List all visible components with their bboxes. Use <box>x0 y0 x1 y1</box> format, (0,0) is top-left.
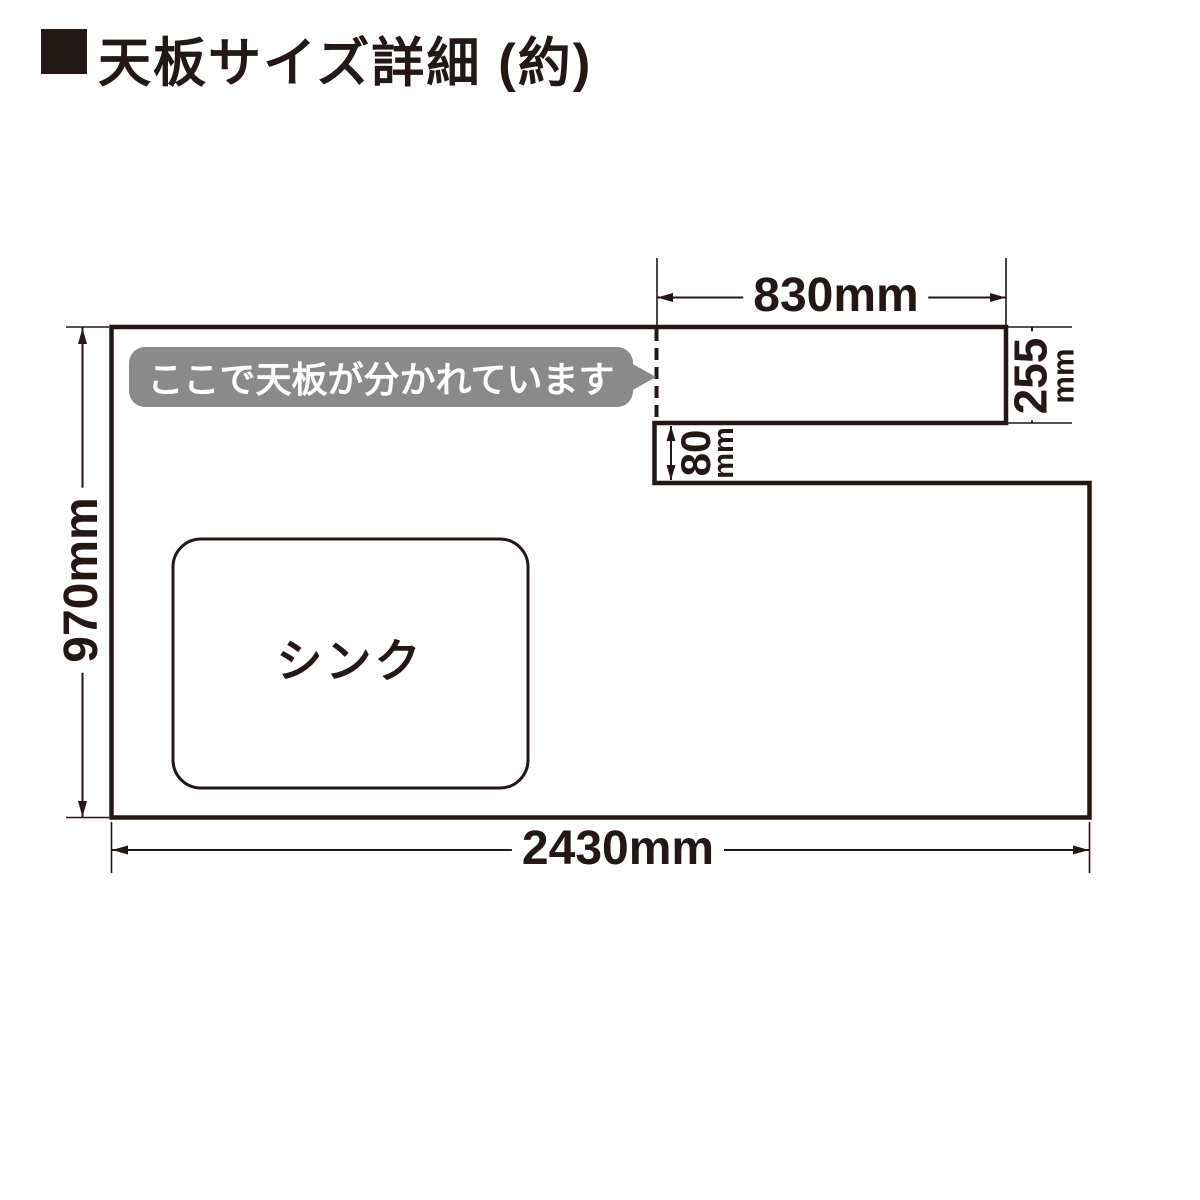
dim-255-unit: mm <box>1050 338 1075 415</box>
dim-830-label: 830mm <box>743 272 928 320</box>
callout-bubble: ここで天板が分かれています <box>129 347 633 407</box>
dim-970-label: 970mm <box>58 487 106 672</box>
countertop-size-diagram-page: 天板サイズ詳細 (約) <box>0 0 1200 1200</box>
callout-text: ここで天板が分かれています <box>148 351 615 403</box>
dim-2430-label: 2430mm <box>512 825 724 873</box>
dim-830-arrow-right <box>990 293 1006 302</box>
callout-pointer <box>631 363 656 391</box>
dim-255-label: 255 mm <box>1010 332 1077 421</box>
dim-80-unit: mm <box>713 427 737 479</box>
dim-2430-arrow-left <box>112 846 128 855</box>
dim-970-arrow-bottom <box>78 801 87 817</box>
countertop-drawing <box>0 0 1200 1200</box>
dim-970-arrow-top <box>78 328 87 344</box>
dim-80-label: 80 mm <box>677 421 739 485</box>
dim-2430-arrow-right <box>1073 846 1089 855</box>
sink-label: シンク <box>277 625 424 691</box>
dim-830-arrow-left <box>657 293 673 302</box>
